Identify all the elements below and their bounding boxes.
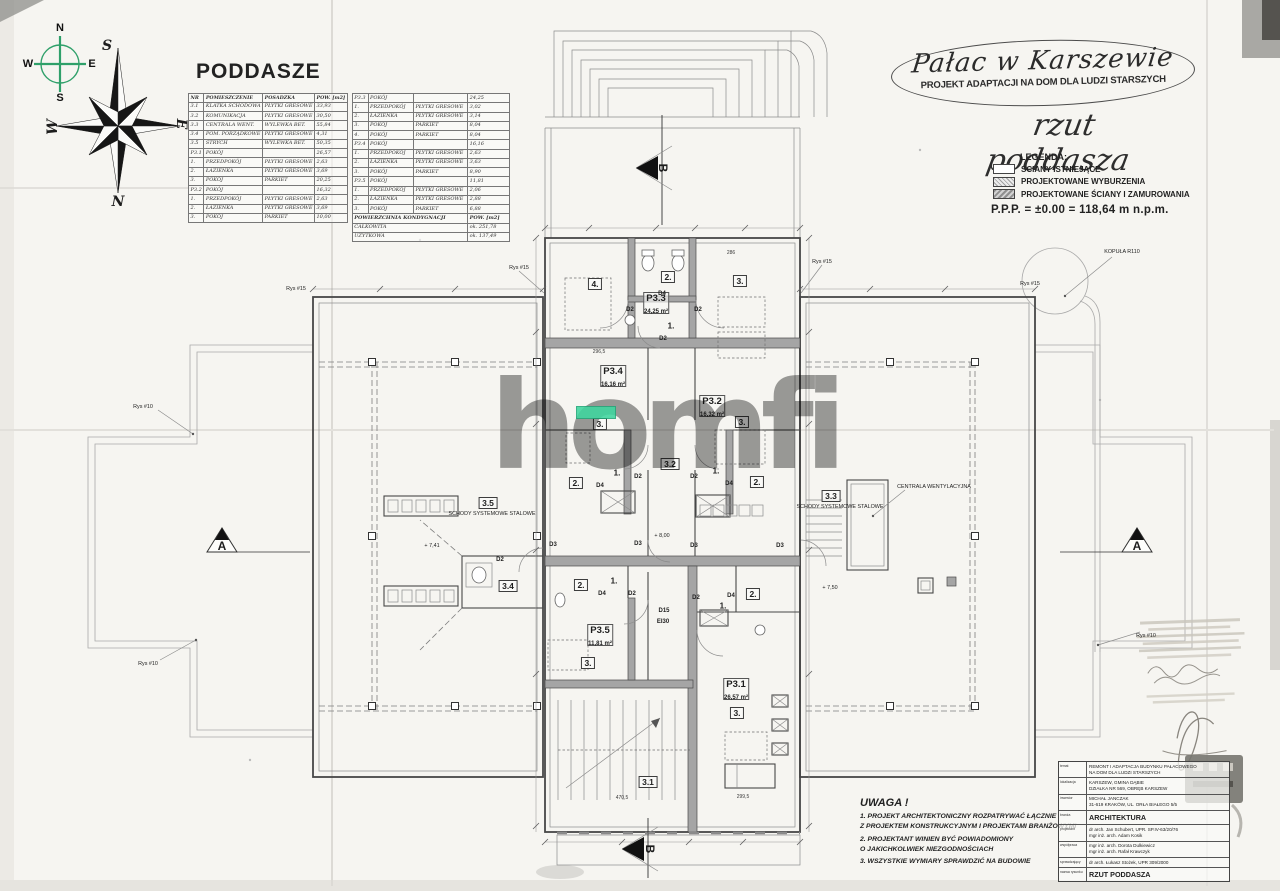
notes-block: UWAGA ! 1. PROJEKT ARCHITEKTONICZNY ROZP…	[860, 797, 1078, 870]
room-row: 3.5 STRYCH WYLEWKA BET. 50,35	[189, 139, 348, 148]
titleblock-row-label: branża	[1059, 811, 1087, 824]
level-reference-note: P.P.P. = ±0.00 = 118,64 m n.p.m.	[991, 204, 1169, 216]
compass-s-label: S	[56, 92, 63, 104]
notes-title: UWAGA !	[860, 797, 1078, 809]
titleblock-row-label: projektant	[1059, 825, 1087, 840]
legend: LEGENDA: ŚCIANY ISTNIEJĄCE PROJEKTOWANE …	[993, 152, 1213, 202]
titleblock-row: branża ARCHITEKTURA	[1059, 811, 1229, 825]
room-row: 1. PRZEDPOKÓJ PŁYTKI GRESOWE 2,63	[189, 158, 348, 167]
room-row: 1. PRZEDPOKÓJ PŁYTKI GRESOWE 2,63	[189, 195, 348, 204]
room-table-header: NR POMIESZCZENIE POSADZKA POW. [m2]	[189, 94, 348, 103]
titleblock-row: projektant dr arch. Jan Schubert, UPR. S…	[1059, 825, 1229, 841]
titleblock-row-value: RZUT PODDASZA	[1087, 868, 1229, 881]
room-row: 3.1 KLATKA SCHODOWA PŁYTKI GRESOWE 33,93	[189, 102, 348, 111]
titleblock-row: nazwa rysunku RZUT PODDASZA	[1059, 868, 1229, 881]
room-row: 1. PRZEDPOKÓJ PŁYTKI GRESOWE 2,06	[352, 186, 509, 195]
note-item: 1. PROJEKT ARCHITEKTONICZNY ROZPATRYWAĆ …	[860, 812, 1078, 832]
legend-swatch-icon	[993, 189, 1015, 199]
room-row: P3.2 POKÓJ 16,32	[189, 186, 348, 195]
legend-item: PROJEKTOWANE WYBURZENIA	[993, 177, 1213, 187]
room-row: P3.4 POKÓJ 16,16	[352, 140, 509, 149]
highlighted-room-marker	[576, 406, 616, 419]
titleblock-row-label: nazwa rysunku	[1059, 868, 1087, 881]
room-row: 3.2 KOMUNIKACJA PŁYTKI GRESOWE 30,50	[189, 112, 348, 121]
room-row: 3.4 POM. PORZĄDKOWE PŁYTKI GRESOWE 4,31	[189, 130, 348, 139]
room-row: 1. PRZEDPOKÓJ PŁYTKI GRESOWE 2,63	[352, 149, 509, 158]
room-row: 2. ŁAZIENKA PŁYTKI GRESOWE 3,69	[189, 204, 348, 213]
room-row: 2. ŁAZIENKA PŁYTKI GRESOWE 3,63	[352, 158, 509, 167]
titleblock-row: inwestor MICHAŁ JANCZAK 31-619 KRAKÓW, U…	[1059, 795, 1229, 811]
room-row: P3.3 POKÓJ 24,25	[352, 94, 509, 103]
room-table-right: P3.3 POKÓJ 24,25 1. PRZEDPOKÓJ PŁYTKI GR…	[352, 93, 510, 242]
scanned-floor-plan-sheet: .w{fill:none;stroke:#474747;stroke-width…	[0, 0, 1280, 891]
room-row: 2. ŁAZIENKA PŁYTKI GRESOWE 3,14	[352, 112, 509, 121]
legend-item: PROJEKTOWANE ŚCIANY I ZAMUROWANIA	[993, 189, 1213, 199]
compass-green: N W E S	[28, 20, 100, 104]
room-row: 2. ŁAZIENKA PŁYTKI GRESOWE 3,69	[189, 167, 348, 176]
titleblock-row-value: KARSZEW, GMINA DĄBIE DZIAŁKA NR 569, OBR…	[1087, 778, 1229, 793]
note-item: 2. PROJEKTANT WINIEN BYĆ POWIADOMIONY O …	[860, 835, 1078, 855]
room-row: 2. ŁAZIENKA PŁYTKI GRESOWE 2,88	[352, 195, 509, 204]
titleblock-row-label: inwestor	[1059, 795, 1087, 810]
room-row: P3.5 POKÓJ 11,81	[352, 177, 509, 186]
note-item: 3. WSZYSTKIE WYMIARY SPRAWDZIĆ NA BUDOWI…	[860, 857, 1078, 867]
summary-row: CAŁKOWITA ok. 251,78	[352, 223, 509, 232]
titleblock-row-label: lokalizacja	[1059, 778, 1087, 793]
titleblock-row-value: mgr inż. arch. Dorota Dulkiewicz mgr inż…	[1087, 842, 1229, 857]
titleblock-row-label: sprawdzający	[1059, 858, 1087, 867]
legend-label: PROJEKTOWANE WYBURZENIA	[1021, 177, 1145, 186]
room-tables: NR POMIESZCZENIE POSADZKA POW. [m2] 3.1 …	[188, 93, 510, 242]
titleblock-row: temat REMONT I ADAPTACJA BUDYNKU PAŁACOW…	[1059, 762, 1229, 778]
titleblock-row-value: dr arch. Jan Schubert, UPR. SP.IV-63/20/…	[1087, 825, 1229, 840]
compass-w-label: W	[23, 58, 33, 70]
titleblock-row: lokalizacja KARSZEW, GMINA DĄBIE DZIAŁKA…	[1059, 778, 1229, 794]
titleblock-row: współpraca mgr inż. arch. Dorota Dulkiew…	[1059, 842, 1229, 858]
compass-n-label: N	[56, 22, 64, 34]
titleblock-row: sprawdzający dr arch. Łukasz Stożek, UPR…	[1059, 858, 1229, 868]
room-row: 3. POKÓJ PARKIET 8,90	[352, 168, 509, 177]
room-row: P3.1 POKÓJ 26,57	[189, 149, 348, 158]
room-table-left: NR POMIESZCZENIE POSADZKA POW. [m2] 3.1 …	[188, 93, 348, 223]
summary-row: UŻYTKOWA ok. 137,49	[352, 232, 509, 241]
titleblock-row-label: temat	[1059, 762, 1087, 777]
legend-label: PROJEKTOWANE ŚCIANY I ZAMUROWANIA	[1021, 190, 1190, 199]
room-row: 3. POKÓJ PARKIET 10,00	[189, 213, 348, 222]
room-row: 1. PRZEDPOKÓJ PŁYTKI GRESOWE 3,02	[352, 103, 509, 112]
titleblock-row-value: REMONT I ADAPTACJA BUDYNKU PAŁACOWEGO NA…	[1087, 762, 1229, 777]
legend-title: LEGENDA:	[1020, 152, 1213, 162]
room-row: 3. POKÓJ PARKIET 8,04	[352, 121, 509, 130]
titleblock-row-value: ARCHITEKTURA	[1087, 811, 1229, 824]
legend-item: ŚCIANY ISTNIEJĄCE	[993, 164, 1213, 174]
titleblock-row-label: współpraca	[1059, 842, 1087, 857]
legend-label: ŚCIANY ISTNIEJĄCE	[1021, 165, 1100, 174]
title-block: temat REMONT I ADAPTACJA BUDYNKU PAŁACOW…	[1058, 761, 1230, 882]
compass-e-label: E	[88, 58, 95, 70]
summary-header-row: POWIERZCHNIA KONDYGNACJI POW. [m2]	[352, 214, 509, 223]
room-row: 3.3 CENTRALA WENT. WYLEWKA BET. 55,84	[189, 121, 348, 130]
room-row: 3. POKÓJ PARKIET 6,88	[352, 205, 509, 214]
room-row: 3. POKÓJ PARKIET 20,25	[189, 176, 348, 185]
titleblock-row-value: MICHAŁ JANCZAK 31-619 KRAKÓW, UL. ORŁA B…	[1087, 795, 1229, 810]
attic-heading: PODDASZE	[196, 60, 321, 84]
legend-swatch-icon	[993, 177, 1015, 187]
room-row: 4. POKÓJ PARKIET 8,04	[352, 131, 509, 140]
titleblock-row-value: dr arch. Łukasz Stożek, UPR 309/2000	[1087, 858, 1229, 867]
legend-swatch-icon	[993, 164, 1015, 174]
